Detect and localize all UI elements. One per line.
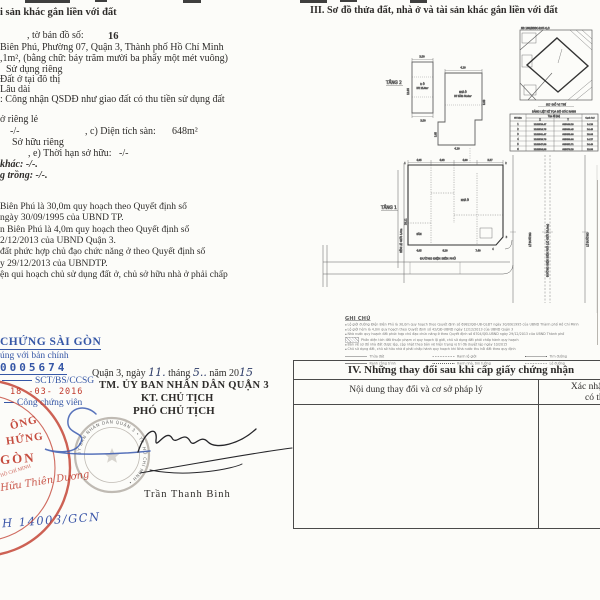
planning-note: n Biên Phú là 4,0m quy hoạch theo Quyết … <box>0 226 189 236</box>
signer-name: Trần Thanh Bình <box>144 489 231 500</box>
handwritten-year: 15 <box>239 366 253 379</box>
notes-title: GHI CHÚ <box>345 316 598 322</box>
coordinates-table: BẢNG LIỆT KÊ TỌA ĐỘ GÓC RANH Số hiệu Tọa… <box>510 109 598 152</box>
svg-text:2: 2 <box>505 162 507 165</box>
seal-star <box>104 448 120 463</box>
notary-date-stamp: 18 -03- 2016 <box>10 388 83 397</box>
svg-text:605860.45: 605860.45 <box>562 129 574 131</box>
svg-text:2: 2 <box>517 128 519 131</box>
scan-artifact <box>340 0 357 2</box>
svg-text:TẦNG 1: TẦNG 1 <box>380 205 397 210</box>
section4-col2-header-line1: Xác nhận của cơ quan <box>538 382 600 392</box>
plan-middle: 4.10 8.60 4.10 3.05 NHÀ Ở DT SÀN: 48,6m² <box>435 67 487 164</box>
scan-artifact <box>95 0 107 2</box>
svg-text:605852.71: 605852.71 <box>562 144 574 146</box>
chairman-signature <box>138 429 256 452</box>
parcel-diagram: 3.50 3.50 12.85 P. Ở DT: 25,8m² TẦNG 2 4… <box>300 25 600 315</box>
svg-text:3: 3 <box>506 236 508 239</box>
stamp-rule <box>4 402 14 403</box>
planning-note: ngày 30/09/1995 của UBND TP. <box>0 214 124 224</box>
planning-note: đất phức hợp chủ đạo chức năng ở theo Qu… <box>0 248 205 258</box>
svg-text:4.10: 4.10 <box>460 67 466 70</box>
ownership-term-label: , e) Thời hạn sở hữu: <box>28 149 112 160</box>
handwritten-ref-code: H 14003/GCN <box>2 511 101 530</box>
issuing-authority: TM. ỦY BAN NHÂN DÂN QUẬN 3 <box>99 380 269 391</box>
svg-text:12.85: 12.85 <box>407 88 410 95</box>
chairman-signature-flourish <box>140 448 292 473</box>
certificate-scan-page: i sản khác gắn liền với đất , tờ bản đồ … <box>0 0 600 600</box>
notary-stamp-title: CHỨNG SÀI GÒN <box>0 336 101 350</box>
svg-text:1192524.75: 1192524.75 <box>534 129 547 131</box>
svg-text:1: 1 <box>404 162 406 165</box>
svg-text:4: 4 <box>517 138 519 141</box>
planning-note: y 29/12/2013 của UBNDTP. <box>0 260 108 270</box>
table-column-divider <box>538 379 539 528</box>
svg-text:Cạnh (m): Cạnh (m) <box>585 118 595 120</box>
signing-title-1: KT. CHỦ TỊCH <box>141 393 213 404</box>
address-line: Biên Phú, Phường 07, Quận 3, Thành phố H… <box>0 43 224 54</box>
svg-text:4.95: 4.95 <box>416 159 422 162</box>
scan-artifact <box>300 0 327 3</box>
svg-text:4.93: 4.93 <box>439 159 445 162</box>
svg-text:SƠ ĐỒ VỊ TRÍ: SƠ ĐỒ VỊ TRÍ <box>546 102 566 107</box>
notary-serial-number: 0005674 <box>0 362 67 375</box>
svg-text:4.10: 4.10 <box>454 148 460 151</box>
notary-role: Công chứng viên <box>4 399 82 409</box>
legend-item: Thửa đất <box>345 355 433 359</box>
section4-title: IV. Những thay đổi sau khi cấp giấy chứn… <box>294 361 600 376</box>
svg-text:5.57: 5.57 <box>487 159 493 162</box>
svg-text:BẢNG LIỆT KÊ TỌA ĐỘ GÓC RANH: BẢNG LIỆT KÊ TỌA ĐỘ GÓC RANH <box>532 109 576 114</box>
forest-line: g trồng: -/-. <box>0 171 48 182</box>
svg-text:NHÀ Ở: NHÀ Ở <box>461 199 469 202</box>
land-origin: : Công nhận QSDĐ như giao đất có thu tiề… <box>0 95 225 106</box>
plan-tang2: 3.50 3.50 12.85 P. Ở DT: 25,8m² TẦNG 2 <box>385 56 433 123</box>
svg-text:14.27: 14.27 <box>587 139 594 141</box>
house-type: ở riêng lẻ <box>0 115 38 126</box>
svg-text:HẺM LỘ GIỚI 4,0m: HẺM LỘ GIỚI 4,0m <box>398 228 403 253</box>
svg-text:14.28: 14.28 <box>587 124 594 126</box>
plan-tang1: TẦNG 1 HẺM LỘ GIỚI 4,0m 4.95 4.93 4.90 5 <box>323 155 597 313</box>
note-item: Chủ sử dụng đất, chủ sở hữu nhà ở phải c… <box>345 347 598 352</box>
ownership-form: Sở hữu riêng <box>12 138 64 149</box>
diagram-notes: GHI CHÚ Lộ giới đường Điện Biên Phủ là 3… <box>345 316 598 358</box>
svg-text:7.40: 7.40 <box>475 250 481 253</box>
scan-artifact <box>410 0 427 3</box>
svg-text:DT: 25,8m²: DT: 25,8m² <box>416 87 428 90</box>
svg-text:605876.28: 605876.28 <box>562 149 574 151</box>
table-rule <box>294 379 600 380</box>
svg-text:Tọa độ (m): Tọa độ (m) <box>548 115 560 118</box>
svg-text:4.95: 4.95 <box>416 250 422 253</box>
subject-parcel-outline <box>527 38 588 92</box>
svg-text:ĐƯỜNG ĐIỆN BIÊN PHỦ (LỘ GIỚI 3: ĐƯỜNG ĐIỆN BIÊN PHỦ (LỘ GIỚI 30,0m) <box>545 224 550 277</box>
svg-text:NHÀ Ở: NHÀ Ở <box>459 91 467 94</box>
svg-text:3.05: 3.05 <box>435 132 438 137</box>
svg-text:28.06: 28.06 <box>587 134 594 136</box>
floor-area-value: 648m² <box>172 127 198 138</box>
svg-text:3: 3 <box>517 133 519 136</box>
map-sheet-number: 16 <box>108 31 119 42</box>
svg-text:605838.64: 605838.64 <box>562 139 574 141</box>
svg-text:20,11: 20,11 <box>405 218 408 225</box>
other-assets-line: khác: -/-. <box>0 160 38 171</box>
section2-heading-fragment: i sản khác gắn liền với đất <box>0 7 117 18</box>
svg-text:1: 1 <box>517 123 519 126</box>
notary-code: SCT/BS/CCSG <box>2 377 94 387</box>
svg-text:ĐƯỜNG ĐIỆN BIÊN PHỦ: ĐƯỜNG ĐIỆN BIÊN PHỦ <box>420 256 456 261</box>
section4-col1-header: Nội dung thay đổi và cơ sở pháp lý <box>294 385 538 395</box>
section3-heading: III. Sơ đồ thửa đất, nhà ở và tài sản kh… <box>310 6 558 17</box>
parcel-boundary <box>408 165 503 245</box>
floor-area-label: , c) Diện tích sàn: <box>85 127 156 138</box>
svg-text:8.60: 8.60 <box>483 99 486 105</box>
legend-line-sample <box>345 356 367 357</box>
legend-line-sample <box>525 356 547 357</box>
svg-text:TẦNG 2: TẦNG 2 <box>385 80 402 85</box>
blank-value: -/- <box>10 127 19 138</box>
planning-note: 2/12/2013 của UBND Quận 3. <box>0 237 116 247</box>
svg-text:1192528.47: 1192528.47 <box>534 124 547 126</box>
svg-text:1192534.38: 1192534.38 <box>534 149 547 151</box>
svg-text:SĐ 160/BĐĐC-P.07-Q.3: SĐ 160/BĐĐC-P.07-Q.3 <box>521 26 550 30</box>
svg-text:4: 4 <box>492 248 494 251</box>
legend-item: Ranh lộ giới <box>433 355 526 359</box>
table-rule <box>294 404 600 405</box>
scan-artifact <box>183 0 201 3</box>
ownership-term-value: -/- <box>119 149 128 160</box>
legend-line-sample <box>433 356 455 357</box>
planning-note: Biên Phú là 30,0m quy hoạch theo Quyết đ… <box>0 203 187 213</box>
location-map: SĐ 160/BĐĐC-P.07-Q.3 SƠ ĐỒ VỊ TRÍ <box>520 26 592 107</box>
svg-text:24.45: 24.45 <box>587 129 594 131</box>
svg-text:6.20: 6.20 <box>442 250 448 253</box>
red-stamp-word: ÔNG <box>9 415 39 433</box>
svg-text:1192547.58: 1192547.58 <box>534 144 547 146</box>
svg-text:605846.28: 605846.28 <box>562 124 574 126</box>
section4-changes-table: IV. Những thay đổi sau khi cấp giấy chứn… <box>293 360 600 529</box>
planning-note: ện qui hoạch chủ sử dụng đất ở, chủ sở h… <box>0 271 228 281</box>
svg-text:P. Ở: P. Ở <box>420 83 425 86</box>
svg-text:5: 5 <box>517 143 519 146</box>
svg-text:13.98: 13.98 <box>587 149 594 151</box>
svg-text:1192528.79: 1192528.79 <box>534 139 547 141</box>
svg-text:3.50: 3.50 <box>419 56 425 59</box>
svg-text:605853.08: 605853.08 <box>562 134 574 136</box>
handwritten-day: 11. <box>148 366 166 379</box>
signing-title-2: PHÓ CHỦ TỊCH <box>133 406 215 418</box>
svg-text:24.49: 24.49 <box>587 144 594 146</box>
red-stamp-word: HỨNG <box>5 431 44 448</box>
map-sheet-label: , tờ bản đồ số: <box>27 31 84 42</box>
svg-text:LỀ ĐƯỜNG: LỀ ĐƯỜNG <box>527 233 532 247</box>
legend-item: Tim đường <box>525 355 595 359</box>
svg-text:Số hiệu: Số hiệu <box>514 117 522 120</box>
svg-text:1192501.47: 1192501.47 <box>534 134 547 136</box>
svg-text:DT SÀN: 48,6m²: DT SÀN: 48,6m² <box>454 95 472 98</box>
svg-text:3.50: 3.50 <box>420 120 426 123</box>
scan-artifact <box>25 0 70 3</box>
stamp-rule <box>2 380 32 381</box>
svg-text:4.90: 4.90 <box>462 159 468 162</box>
svg-text:6: 6 <box>517 148 519 151</box>
section4-col2-header-line2: có thẩm quyền <box>538 393 600 403</box>
handwritten-month: 5.. <box>193 366 207 379</box>
svg-text:SÂN: SÂN <box>417 233 422 236</box>
area-in-words: ,1m², (bằng chữ: bảy trăm mười ba phẩy m… <box>0 54 228 65</box>
signing-date-line: Quận 3, ngày 11. tháng 5.. năm 2015 <box>92 367 253 380</box>
